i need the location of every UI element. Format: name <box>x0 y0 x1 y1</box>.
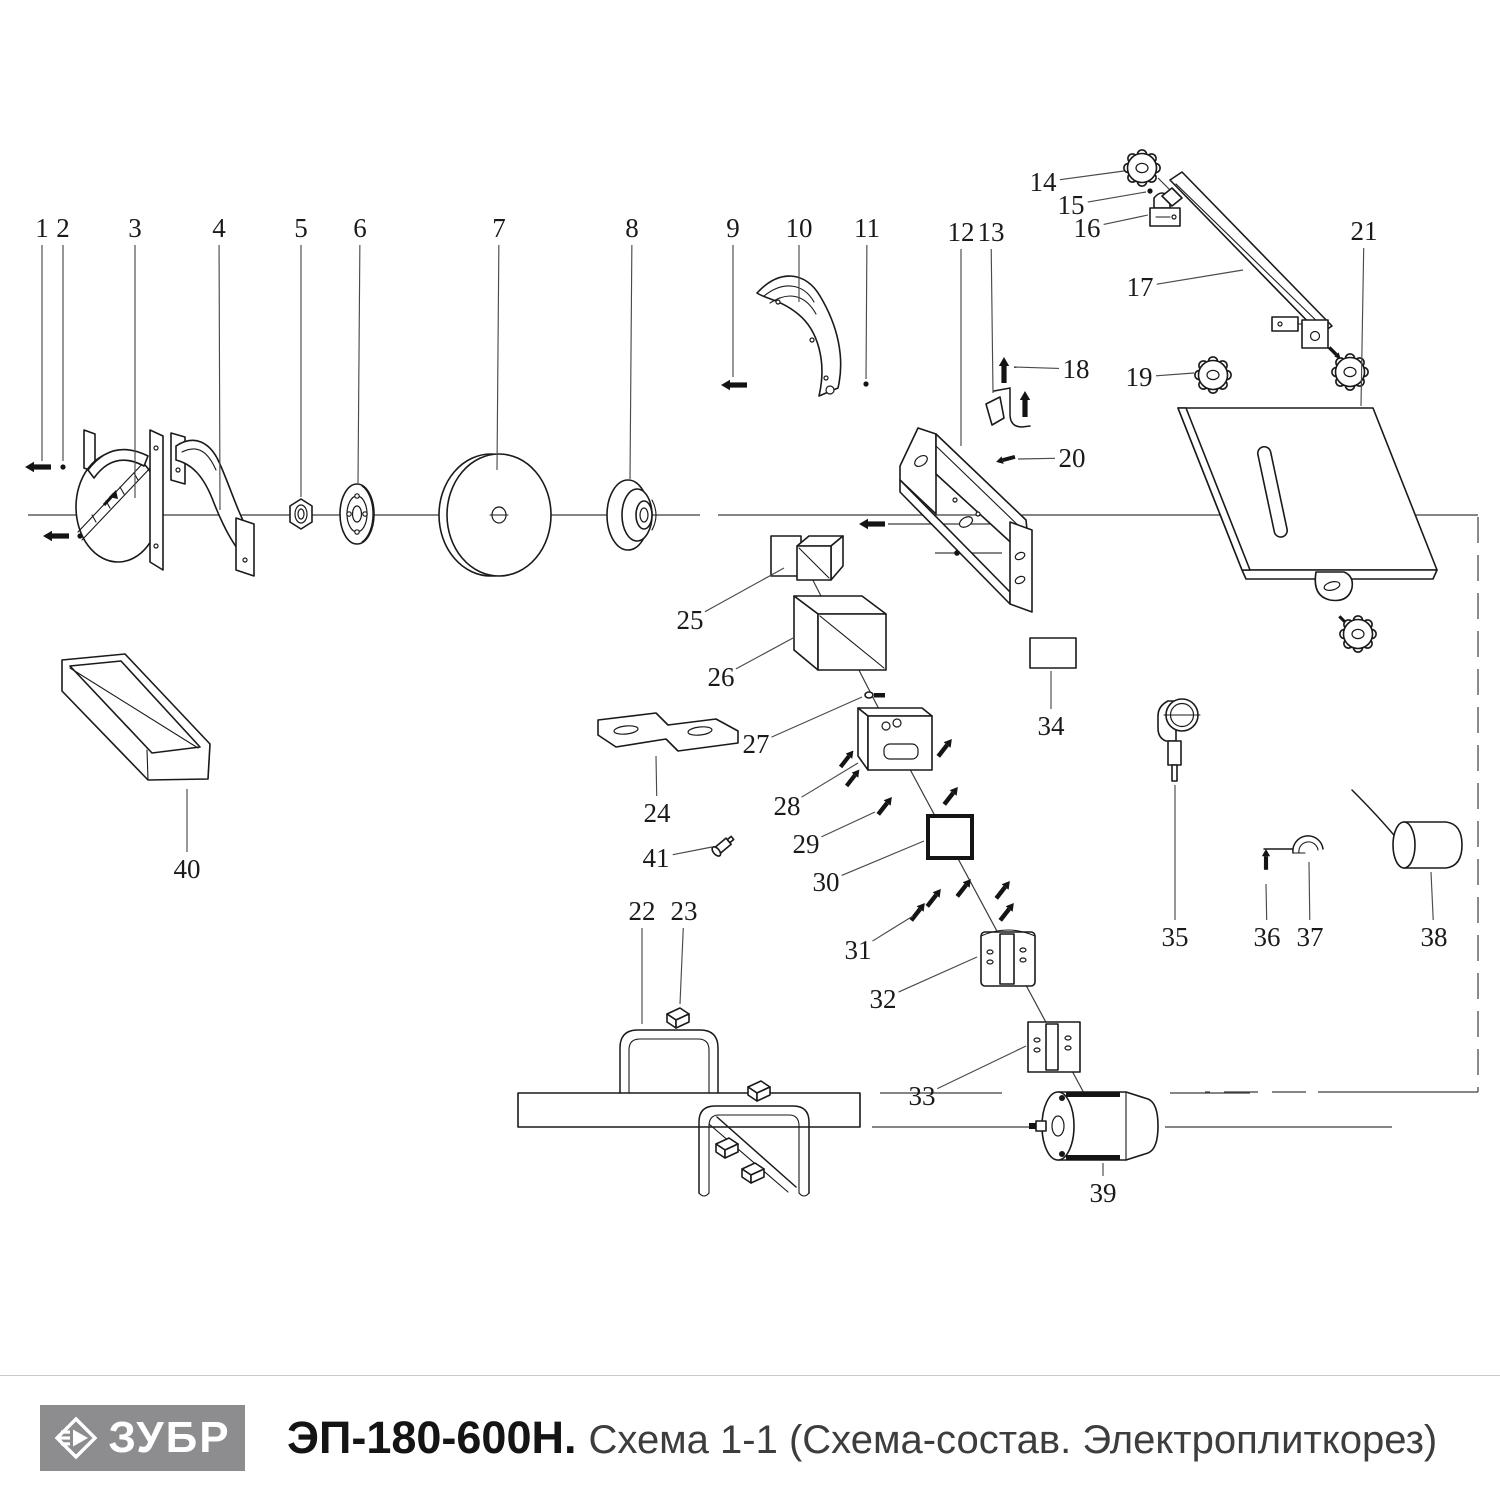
footer-bar: ЗУБР ЭП-180-600Н.Схема 1-1 (Схема-состав… <box>0 1375 1500 1500</box>
callout-number-23: 23 <box>671 896 698 926</box>
leader-line-38 <box>1431 872 1433 920</box>
leader-line-8 <box>630 245 632 479</box>
callout-number-29: 29 <box>793 829 820 859</box>
callout-number-22: 22 <box>629 896 656 926</box>
exploded-view-drawing: 1234567891011121314151617181920212223242… <box>0 0 1500 1375</box>
part-40-water-tray <box>62 654 210 780</box>
part-38-capacitor <box>1352 790 1462 868</box>
callout-number-12: 12 <box>948 217 975 247</box>
callout-number-38: 38 <box>1421 922 1448 952</box>
part-33-brush-holder <box>1028 1022 1080 1072</box>
part-9-bolt <box>721 380 747 390</box>
axis-lines <box>28 178 1478 1127</box>
callout-number-31: 31 <box>845 935 872 965</box>
callout-number-28: 28 <box>774 791 801 821</box>
part-2-screw <box>43 531 83 541</box>
leader-line-7 <box>497 245 499 470</box>
callout-number-3: 3 <box>128 213 142 243</box>
leader-line-32 <box>899 957 977 992</box>
leader-line-19 <box>1156 373 1194 376</box>
callout-number-27: 27 <box>743 729 770 759</box>
callout-number-4: 4 <box>212 213 226 243</box>
callout-number-30: 30 <box>813 867 840 897</box>
callout-number-18: 18 <box>1063 354 1090 384</box>
part-34-label-plate <box>1030 638 1076 668</box>
callout-number-10: 10 <box>786 213 813 243</box>
leader-line-30 <box>842 841 924 875</box>
part-37-cable-clamp <box>1264 836 1323 853</box>
part-19-knob <box>1195 357 1231 393</box>
callout-number-36: 36 <box>1254 922 1281 952</box>
model-number: ЭП-180-600Н. <box>287 1412 577 1463</box>
part-7-cutting-disc <box>439 454 551 576</box>
callout-number-16: 16 <box>1074 213 1101 243</box>
callout-number-21: 21 <box>1351 216 1378 246</box>
callout-number-33: 33 <box>909 1081 936 1111</box>
part-32-brush-holder <box>981 930 1035 986</box>
part-27-screw <box>865 692 885 698</box>
callout-number-35: 35 <box>1162 922 1189 952</box>
callout-number-40: 40 <box>174 854 201 884</box>
leader-line-23 <box>680 928 683 1004</box>
callout-number-20: 20 <box>1059 443 1086 473</box>
part-14-knob <box>1124 150 1160 186</box>
leader-line-41 <box>673 847 712 855</box>
part-3-blade-guard-half <box>76 430 163 570</box>
part-8-inner-flange <box>607 480 656 550</box>
leader-line-20 <box>1018 458 1055 459</box>
callout-number-13: 13 <box>978 217 1005 247</box>
callout-number-6: 6 <box>353 213 367 243</box>
callout-number-8: 8 <box>625 213 639 243</box>
leader-line-25 <box>705 568 784 612</box>
callout-number-37: 37 <box>1297 922 1324 952</box>
brand-arrow-icon <box>54 1416 98 1460</box>
leader-line-37 <box>1309 862 1310 920</box>
callout-number-5: 5 <box>294 213 308 243</box>
callout-number-32: 32 <box>870 984 897 1014</box>
part-31-screws <box>908 886 945 923</box>
callout-number-39: 39 <box>1090 1178 1117 1208</box>
callout-number-26: 26 <box>708 662 735 692</box>
part-11-pin <box>863 381 868 386</box>
leader-line-18 <box>1014 367 1059 368</box>
leader-line-27 <box>772 697 862 737</box>
leader-line-17 <box>1157 270 1243 284</box>
callout-number-19: 19 <box>1126 362 1153 392</box>
part-39-motor <box>1029 1092 1158 1160</box>
part-5-nut <box>290 499 312 529</box>
callout-labels: 1234567891011121314151617181920212223242… <box>35 167 1447 1208</box>
callout-number-41: 41 <box>643 843 670 873</box>
leader-line-33 <box>937 1046 1026 1089</box>
callout-number-11: 11 <box>854 213 880 243</box>
part-17-guide-rail <box>1162 172 1368 390</box>
callout-number-14: 14 <box>1030 167 1058 197</box>
part-28-switch <box>837 708 932 788</box>
callout-number-1: 1 <box>35 213 49 243</box>
part-26-terminal-box <box>794 596 886 670</box>
part-1-screw <box>25 462 66 472</box>
leader-line-6 <box>358 245 360 483</box>
part-30-plate <box>928 816 972 858</box>
leader-line-16 <box>1104 215 1148 224</box>
part-20-screw <box>995 453 1016 466</box>
part-21-table <box>1178 408 1437 652</box>
leader-line-36 <box>1266 884 1267 920</box>
part-4-blade-guard-half <box>171 433 254 576</box>
part-12-motor-bracket <box>859 428 1032 612</box>
part-29-screw <box>875 794 896 817</box>
exploded-parts-diagram-page: 1234567891011121314151617181920212223242… <box>0 0 1500 1500</box>
callout-number-7: 7 <box>492 213 506 243</box>
leader-line-31 <box>872 916 913 941</box>
part-18-bolts <box>999 357 1030 417</box>
callout-number-9: 9 <box>726 213 740 243</box>
leader-line-15 <box>1088 192 1146 202</box>
callout-number-34: 34 <box>1038 711 1066 741</box>
part-25-terminal-box-cover <box>771 536 843 580</box>
callout-number-24: 24 <box>644 798 672 828</box>
leader-line-13 <box>991 249 993 393</box>
part-41-screw <box>711 834 736 858</box>
part-35-power-plug <box>1158 699 1200 781</box>
leader-line-14 <box>1060 171 1124 180</box>
callout-number-2: 2 <box>56 213 70 243</box>
schema-subtitle: Схема 1-1 (Схема-состав. Электроплиткоре… <box>589 1418 1438 1462</box>
brand-name: ЗУБР <box>108 1416 230 1460</box>
part-15-pin <box>1147 188 1152 193</box>
callout-number-17: 17 <box>1127 272 1154 302</box>
part-6-outer-flange <box>340 484 374 544</box>
part-24-mounting-plate <box>598 713 738 751</box>
leader-line-11 <box>866 245 867 379</box>
diagram-title: ЭП-180-600Н.Схема 1-1 (Схема-состав. Эле… <box>287 1412 1437 1464</box>
leader-line-24 <box>656 756 657 796</box>
callout-number-25: 25 <box>677 605 704 635</box>
part-22-stand-frame <box>518 1030 860 1196</box>
leader-line-29 <box>821 812 875 837</box>
part-36-screw <box>1262 849 1270 870</box>
leader-line-26 <box>736 638 793 669</box>
brand-logo: ЗУБР <box>40 1405 245 1471</box>
